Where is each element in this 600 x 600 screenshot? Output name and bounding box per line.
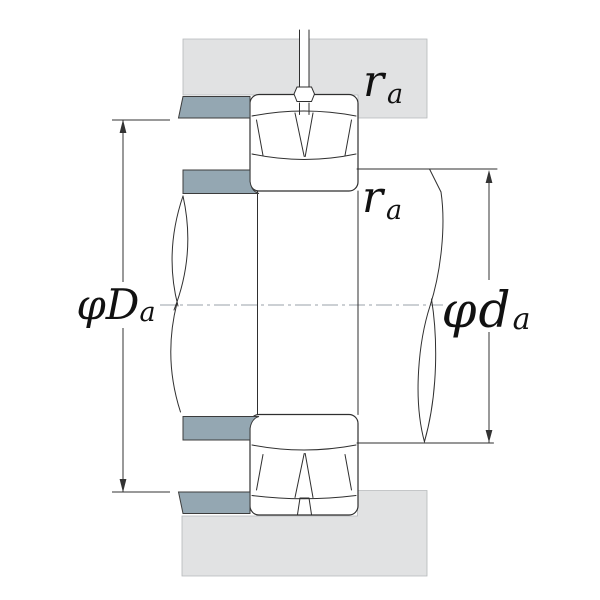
label-ra-mid: ra xyxy=(362,172,402,226)
arrow-down-icon xyxy=(486,430,493,443)
cover-break-line-2 xyxy=(174,196,188,310)
bearing-outline-top xyxy=(250,95,358,192)
bearing-outline-bottom xyxy=(250,415,358,516)
cover-break-line-3 xyxy=(171,303,181,412)
bearing-section-bottom xyxy=(250,415,358,516)
bearing-mounting-diagram: φDa φda ra ra xyxy=(0,0,600,600)
housing-cover-break xyxy=(171,196,188,412)
arrow-up-icon xyxy=(486,170,493,183)
abutment-ring-top-inner xyxy=(183,170,259,194)
oil-hole-slot xyxy=(300,38,310,95)
dimension-housing-abutment: φDa xyxy=(76,120,170,493)
arrow-down-icon xyxy=(120,479,127,493)
dimension-shaft-abutment: φda xyxy=(442,170,541,443)
abutment-ring-bottom-outer xyxy=(179,492,251,514)
arrow-up-icon xyxy=(120,120,127,134)
abutment-ring-bottom-inner xyxy=(183,417,259,441)
abutment-ring-top-outer xyxy=(179,97,251,119)
shaft-chamfer xyxy=(430,169,442,192)
bearing-section-top xyxy=(250,95,358,192)
shaft-break-line-1 xyxy=(418,192,443,442)
oil-plug xyxy=(294,87,315,102)
